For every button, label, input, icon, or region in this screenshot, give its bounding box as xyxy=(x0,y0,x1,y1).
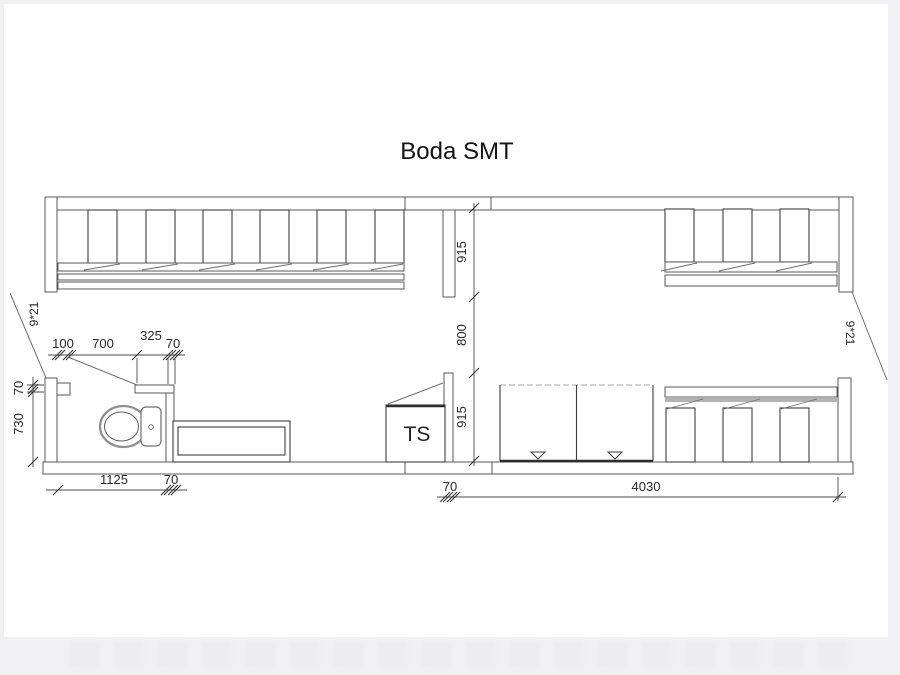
low-bench xyxy=(173,421,290,462)
dim-label-mid-lower: 915 xyxy=(454,406,469,428)
locker xyxy=(375,210,404,263)
dim-label-wc-door-width: 700 xyxy=(92,336,114,351)
locker xyxy=(665,209,694,262)
locker xyxy=(723,408,752,462)
dim-label-wc-jamb: 100 xyxy=(52,336,74,351)
dim-label-partition-wall: 70 xyxy=(166,336,180,351)
right-wall-lower xyxy=(838,378,851,462)
dim-label-ts-wall: 70 xyxy=(443,479,457,494)
dim-wc-top-chain: 100 700 325 70 xyxy=(48,328,185,384)
bench-rail xyxy=(58,274,404,280)
right-wall-upper xyxy=(839,197,853,292)
floor-plan-canvas: Boda SMT xyxy=(0,0,900,675)
dim-bottom-left: 1125 70 xyxy=(46,472,187,495)
left-wall-upper xyxy=(45,197,57,292)
drawing-title: Boda SMT xyxy=(400,138,514,165)
locker xyxy=(780,408,809,462)
dim-bottom-right: 70 4030 xyxy=(437,477,846,502)
ts-label: TS xyxy=(404,423,431,446)
bench-shelf xyxy=(58,263,404,271)
locker xyxy=(88,210,117,263)
dim-label-wc-right-wall: 70 xyxy=(164,472,178,487)
bench-rail xyxy=(665,275,837,286)
ts-closet: TS xyxy=(386,383,445,462)
bench-rail xyxy=(58,282,404,289)
locker xyxy=(723,209,752,262)
door-direction-triangle xyxy=(531,452,545,459)
bench-top-left xyxy=(58,210,404,289)
bench-top-right xyxy=(661,209,837,286)
dim-label-wc-wall-thickness: 70 xyxy=(11,381,26,395)
dim-label-wc-inner-depth: 730 xyxy=(11,413,26,435)
locker xyxy=(666,408,695,462)
dim-middle-vertical: 915 800 915 xyxy=(454,203,479,466)
wc-top-wall xyxy=(135,385,174,393)
left-wall-lower xyxy=(45,378,57,462)
wc-door-swing xyxy=(68,357,137,385)
toilet-icon xyxy=(100,406,161,447)
locker xyxy=(203,210,232,263)
door-direction-triangle xyxy=(608,452,622,459)
floor-plan-page: Boda SMT xyxy=(0,0,900,675)
dim-label-mid-opening: 800 xyxy=(454,324,469,346)
door-size-label-left: 9*21 xyxy=(27,301,41,326)
bench-rail xyxy=(665,387,837,397)
dim-label-wc-inner-width: 1125 xyxy=(100,472,128,487)
locker xyxy=(780,209,809,262)
top-wall xyxy=(45,197,853,210)
wc-room xyxy=(57,357,174,462)
locker xyxy=(317,210,346,263)
locker xyxy=(146,210,175,263)
ts-door-swing xyxy=(388,383,443,404)
door-size-label-right: 9*21 xyxy=(843,321,857,346)
dim-label-hall-length: 4030 xyxy=(632,479,661,494)
locker xyxy=(260,210,289,263)
bench-bottom-right xyxy=(665,387,837,462)
dim-label-mid-upper: 915 xyxy=(454,241,469,263)
wc-door-jamb xyxy=(57,383,70,395)
dim-left-vertical: 70 730 xyxy=(11,377,44,467)
dim-label-wc-to-partition: 325 xyxy=(140,328,162,343)
wardrobe xyxy=(500,385,653,461)
